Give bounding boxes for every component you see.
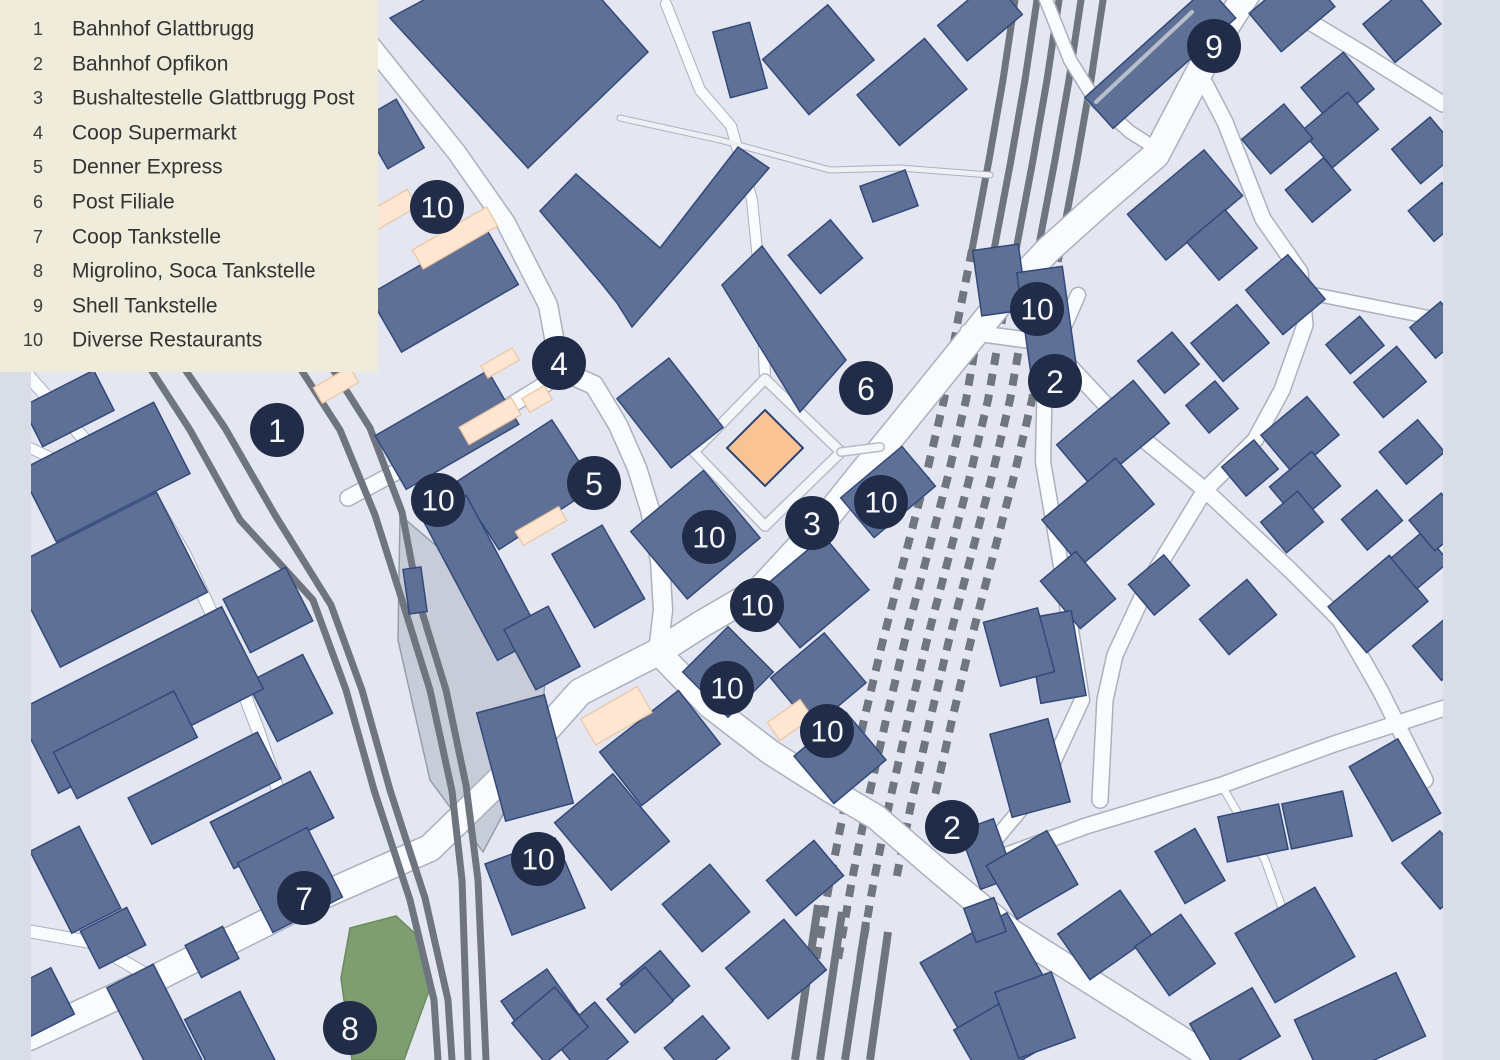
svg-text:3: 3 [33, 88, 43, 108]
svg-text:5: 5 [33, 157, 43, 177]
svg-text:10: 10 [864, 487, 897, 520]
svg-text:10: 10 [23, 330, 43, 350]
svg-text:3: 3 [803, 506, 821, 542]
svg-text:10: 10 [521, 844, 554, 877]
svg-text:1: 1 [33, 19, 43, 39]
svg-text:2: 2 [943, 810, 961, 846]
svg-text:Bahnhof Opfikon: Bahnhof Opfikon [72, 53, 228, 76]
svg-text:Post Filiale: Post Filiale [72, 191, 175, 214]
svg-text:2: 2 [33, 54, 43, 74]
svg-text:10: 10 [1020, 294, 1053, 327]
svg-text:Coop Tankstelle: Coop Tankstelle [72, 226, 221, 249]
svg-text:Bahnhof Glattbrugg: Bahnhof Glattbrugg [72, 18, 254, 41]
svg-text:10: 10 [740, 590, 773, 623]
svg-text:Diverse Restaurants: Diverse Restaurants [72, 329, 262, 352]
svg-text:Shell Tankstelle: Shell Tankstelle [72, 295, 218, 318]
svg-text:9: 9 [1205, 29, 1223, 65]
svg-text:4: 4 [33, 123, 43, 143]
svg-text:4: 4 [550, 346, 568, 382]
svg-text:7: 7 [33, 227, 43, 247]
svg-text:Denner Express: Denner Express [72, 156, 223, 179]
svg-text:9: 9 [33, 296, 43, 316]
svg-text:Coop Supermarkt: Coop Supermarkt [72, 122, 237, 145]
svg-text:10: 10 [420, 192, 453, 225]
svg-text:6: 6 [857, 371, 875, 407]
svg-text:Bushaltestelle Glattbrugg Post: Bushaltestelle Glattbrugg Post [72, 87, 355, 110]
svg-text:10: 10 [692, 522, 725, 555]
svg-text:8: 8 [33, 261, 43, 281]
svg-text:10: 10 [810, 716, 843, 749]
svg-text:Migrolino, Soca Tankstelle: Migrolino, Soca Tankstelle [72, 260, 316, 283]
svg-text:10: 10 [421, 485, 454, 518]
svg-text:5: 5 [585, 466, 603, 502]
svg-text:10: 10 [710, 673, 743, 706]
svg-text:7: 7 [295, 881, 313, 917]
svg-text:2: 2 [1046, 364, 1064, 400]
svg-text:6: 6 [33, 192, 43, 212]
svg-text:8: 8 [341, 1011, 359, 1047]
svg-text:1: 1 [268, 413, 286, 449]
